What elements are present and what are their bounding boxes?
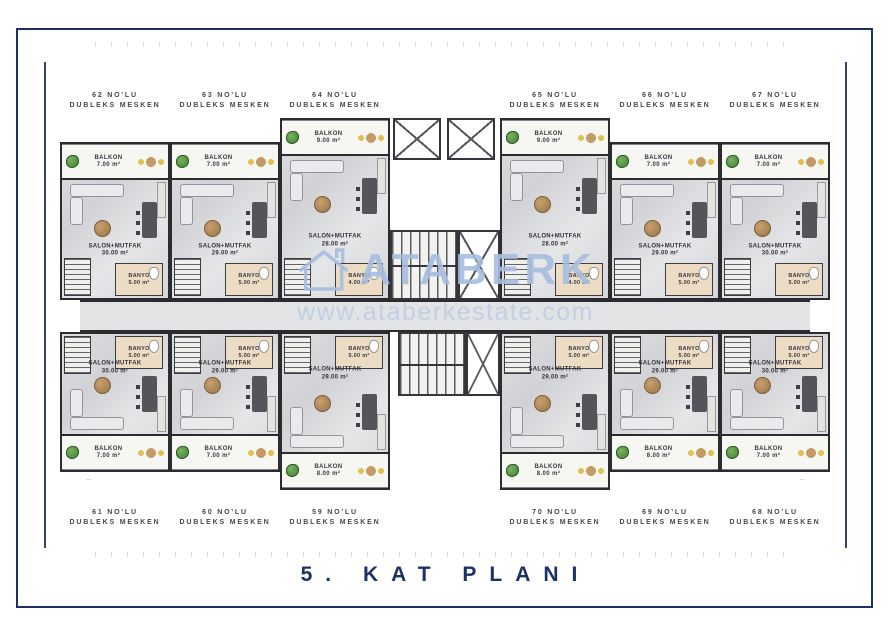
kitchen-counter-icon bbox=[377, 158, 386, 194]
apartment-unit: BALKON 9.00 m² SALON+MUTFAK 28.00 m² BAN… bbox=[280, 118, 390, 300]
shaft-void-icon bbox=[458, 230, 500, 300]
dining-table-icon bbox=[362, 394, 377, 430]
living-room-name: SALON+MUTFAK bbox=[62, 243, 168, 251]
apartment-unit: BALKON 8.00 m² SALON+MUTFAK 29.00 m² BAN… bbox=[610, 332, 720, 472]
living-room-label: SALON+MUTFAK 29.00 m² bbox=[172, 243, 278, 258]
patio-table-icon bbox=[578, 465, 604, 477]
living-room-name: SALON+MUTFAK bbox=[62, 361, 168, 369]
living-room-label: SALON+MUTFAK 29.00 m² bbox=[502, 367, 608, 382]
coffee-table-icon bbox=[754, 377, 771, 394]
dining-table-icon bbox=[252, 202, 267, 238]
bathroom-name: BANYO bbox=[128, 273, 149, 280]
bathroom-area: 5.00 m² bbox=[788, 353, 809, 360]
patio-table-icon bbox=[248, 156, 274, 168]
unit-type: DUBLEKS MESKEN bbox=[620, 102, 711, 109]
living-room-area: 30.00 m² bbox=[722, 251, 828, 259]
patio-table-icon bbox=[358, 465, 384, 477]
unit-number: 60 NO'LU bbox=[202, 509, 248, 516]
living-room-label: SALON+MUTFAK 29.00 m² bbox=[172, 361, 278, 376]
dining-table-icon bbox=[802, 376, 817, 412]
living-room: SALON+MUTFAK 29.00 m² BANYO 5.00 m² bbox=[282, 334, 388, 452]
living-room: SALON+MUTFAK 28.00 m² BANYO 4.00 m² bbox=[282, 156, 388, 298]
living-room-area: 29.00 m² bbox=[502, 374, 608, 382]
sofa-icon bbox=[70, 417, 124, 430]
bathroom: BANYO 5.00 m² bbox=[665, 263, 713, 296]
sofa-icon bbox=[620, 197, 633, 225]
plant-icon bbox=[176, 155, 189, 168]
balcony-area: 7.00 m² bbox=[97, 162, 120, 169]
balcony-label: BALKON 8.00 m² bbox=[644, 446, 672, 460]
bathroom-name: BANYO bbox=[128, 346, 149, 353]
apartment-unit: BALKON 7.00 m² SALON+MUTFAK 30.00 m² BAN… bbox=[720, 332, 830, 472]
coffee-table-icon bbox=[204, 377, 221, 394]
balcony-area: 8.00 m² bbox=[317, 471, 340, 478]
unit-number: 59 NO'LU bbox=[312, 509, 358, 516]
patio-table-icon bbox=[138, 447, 164, 459]
living-room-label: SALON+MUTFAK 30.00 m² bbox=[722, 243, 828, 258]
balcony-name: BALKON bbox=[534, 464, 562, 471]
unit-number: 70 NO'LU bbox=[532, 509, 578, 516]
living-room-area: 28.00 m² bbox=[282, 241, 388, 249]
sofa-icon bbox=[730, 184, 784, 197]
unit-number-label: 62 NO'LU DUBLEKS MESKEN bbox=[60, 80, 170, 120]
coffee-table-icon bbox=[754, 220, 771, 237]
bathroom-name: BANYO bbox=[238, 273, 259, 280]
balcony-area: 9.00 m² bbox=[537, 138, 560, 145]
patio-table-icon bbox=[688, 156, 714, 168]
balcony: BALKON 9.00 m² bbox=[502, 120, 608, 156]
coffee-table-icon bbox=[534, 395, 551, 412]
duplex-stairs-icon bbox=[174, 258, 201, 296]
balcony: BALKON 7.00 m² bbox=[62, 144, 168, 180]
balcony-area: 8.00 m² bbox=[537, 471, 560, 478]
apartment-unit: BALKON 8.00 m² SALON+MUTFAK 29.00 m² BAN… bbox=[280, 332, 390, 490]
bathroom: BANYO 5.00 m² bbox=[335, 336, 383, 369]
plant-icon bbox=[726, 155, 739, 168]
balcony-area: 7.00 m² bbox=[207, 162, 230, 169]
living-room-label: SALON+MUTFAK 29.00 m² bbox=[282, 367, 388, 382]
plant-icon bbox=[506, 131, 519, 144]
unit-number-label: 68 NO'LU DUBLEKS MESKEN bbox=[720, 497, 830, 537]
dining-table-icon bbox=[142, 202, 157, 238]
balcony-label: BALKON 7.00 m² bbox=[644, 155, 672, 169]
building-core bbox=[390, 118, 500, 490]
living-room-label: SALON+MUTFAK 29.00 m² bbox=[612, 243, 718, 258]
bathroom-area: 4.00 m² bbox=[568, 280, 589, 287]
sofa-icon bbox=[730, 417, 784, 430]
unit-number-label: 59 NO'LU DUBLEKS MESKEN bbox=[280, 497, 390, 537]
dining-table-icon bbox=[252, 376, 267, 412]
apartment-unit: BALKON 7.00 m² SALON+MUTFAK 30.00 m² BAN… bbox=[720, 142, 830, 300]
balcony-name: BALKON bbox=[94, 155, 122, 162]
living-room-area: 28.00 m² bbox=[502, 241, 608, 249]
unit-number-label: 70 NO'LU DUBLEKS MESKEN bbox=[500, 497, 610, 537]
bathroom-name: BANYO bbox=[678, 346, 699, 353]
dimension-line-right bbox=[845, 62, 847, 548]
unit-type: DUBLEKS MESKEN bbox=[510, 519, 601, 526]
balcony: BALKON 8.00 m² bbox=[502, 452, 608, 488]
unit-number-label: 66 NO'LU DUBLEKS MESKEN bbox=[610, 80, 720, 120]
bathroom-area: 5.00 m² bbox=[238, 353, 259, 360]
sofa-icon bbox=[730, 389, 743, 417]
bathroom-area: 5.00 m² bbox=[788, 280, 809, 287]
balcony-label: BALKON 8.00 m² bbox=[534, 464, 562, 478]
living-room-label: SALON+MUTFAK 30.00 m² bbox=[62, 243, 168, 258]
sofa-icon bbox=[620, 417, 674, 430]
dimension-ticks-top bbox=[95, 42, 796, 47]
unit-type: DUBLEKS MESKEN bbox=[180, 102, 271, 109]
balcony-name: BALKON bbox=[644, 446, 672, 453]
coffee-table-icon bbox=[94, 377, 111, 394]
balcony: BALKON 7.00 m² bbox=[172, 434, 278, 470]
balcony: BALKON 7.00 m² bbox=[722, 434, 828, 470]
kitchen-counter-icon bbox=[597, 414, 606, 450]
bathroom-name: BANYO bbox=[678, 273, 699, 280]
balcony-label: BALKON 7.00 m² bbox=[754, 155, 782, 169]
unit-type: DUBLEKS MESKEN bbox=[730, 102, 821, 109]
living-room-name: SALON+MUTFAK bbox=[722, 361, 828, 369]
balcony: BALKON 8.00 m² bbox=[282, 452, 388, 488]
bathroom-area: 5.00 m² bbox=[568, 353, 589, 360]
balcony: BALKON 7.00 m² bbox=[62, 434, 168, 470]
living-room-name: SALON+MUTFAK bbox=[612, 361, 718, 369]
unit-type: DUBLEKS MESKEN bbox=[70, 519, 161, 526]
balcony-label: BALKON 8.00 m² bbox=[314, 464, 342, 478]
living-room: SALON+MUTFAK 30.00 m² BANYO 5.00 m² bbox=[62, 334, 168, 434]
bathroom-name: BANYO bbox=[788, 346, 809, 353]
balcony-name: BALKON bbox=[204, 155, 232, 162]
unit-number-label: 69 NO'LU DUBLEKS MESKEN bbox=[610, 497, 720, 537]
sofa-icon bbox=[70, 389, 83, 417]
plant-icon bbox=[616, 446, 629, 459]
bathroom: BANYO 5.00 m² bbox=[775, 263, 823, 296]
sofa-icon bbox=[510, 173, 523, 201]
living-room: SALON+MUTFAK 29.00 m² BANYO 5.00 m² bbox=[502, 334, 608, 452]
dining-table-icon bbox=[362, 178, 377, 214]
living-room: SALON+MUTFAK 29.00 m² BANYO 5.00 m² bbox=[172, 334, 278, 434]
living-room: SALON+MUTFAK 30.00 m² BANYO 5.00 m² bbox=[62, 180, 168, 298]
bathroom-name: BANYO bbox=[568, 346, 589, 353]
kitchen-counter-icon bbox=[157, 182, 166, 218]
bathroom-name: BANYO bbox=[788, 273, 809, 280]
sofa-icon bbox=[510, 435, 564, 448]
coffee-table-icon bbox=[644, 220, 661, 237]
plant-icon bbox=[66, 155, 79, 168]
balcony-name: BALKON bbox=[94, 446, 122, 453]
coffee-table-icon bbox=[534, 196, 551, 213]
sofa-icon bbox=[180, 417, 234, 430]
patio-table-icon bbox=[798, 156, 824, 168]
unit-number-label: 61 NO'LU DUBLEKS MESKEN bbox=[60, 497, 170, 537]
living-room-label: SALON+MUTFAK 28.00 m² bbox=[502, 234, 608, 249]
living-room-name: SALON+MUTFAK bbox=[612, 243, 718, 251]
dining-table-icon bbox=[582, 394, 597, 430]
living-room: SALON+MUTFAK 30.00 m² BANYO 5.00 m² bbox=[722, 180, 828, 298]
living-room-label: SALON+MUTFAK 28.00 m² bbox=[282, 234, 388, 249]
unit-number-label: 63 NO'LU DUBLEKS MESKEN bbox=[170, 80, 280, 120]
dining-table-icon bbox=[582, 178, 597, 214]
bathroom-name: BANYO bbox=[568, 273, 589, 280]
unit-number: 66 NO'LU bbox=[642, 92, 688, 99]
dining-table-icon bbox=[802, 202, 817, 238]
core-gap bbox=[390, 80, 500, 120]
kitchen-counter-icon bbox=[267, 396, 276, 432]
living-room-area: 30.00 m² bbox=[62, 368, 168, 376]
bathroom: BANYO 5.00 m² bbox=[225, 263, 273, 296]
patio-table-icon bbox=[578, 132, 604, 144]
patio-table-icon bbox=[688, 447, 714, 459]
living-room-area: 29.00 m² bbox=[612, 368, 718, 376]
bathroom-area: 5.00 m² bbox=[678, 280, 699, 287]
core-gap bbox=[390, 497, 500, 537]
balcony-area: 8.00 m² bbox=[647, 453, 670, 460]
living-room-label: SALON+MUTFAK 30.00 m² bbox=[62, 361, 168, 376]
unit-number: 67 NO'LU bbox=[752, 92, 798, 99]
coffee-table-icon bbox=[204, 220, 221, 237]
plant-icon bbox=[726, 446, 739, 459]
bathroom-area: 5.00 m² bbox=[128, 280, 149, 287]
living-room-name: SALON+MUTFAK bbox=[282, 234, 388, 242]
balcony-name: BALKON bbox=[644, 155, 672, 162]
kitchen-counter-icon bbox=[597, 158, 606, 194]
living-room: SALON+MUTFAK 29.00 m² BANYO 5.00 m² bbox=[612, 180, 718, 298]
balcony-name: BALKON bbox=[314, 131, 342, 138]
living-room-name: SALON+MUTFAK bbox=[722, 243, 828, 251]
patio-table-icon bbox=[138, 156, 164, 168]
bathroom-area: 5.00 m² bbox=[128, 353, 149, 360]
duplex-stairs-icon bbox=[284, 258, 311, 296]
unit-number-label: 67 NO'LU DUBLEKS MESKEN bbox=[720, 80, 830, 120]
bathroom: BANYO 4.00 m² bbox=[335, 263, 383, 296]
sofa-icon bbox=[290, 435, 344, 448]
dining-table-icon bbox=[692, 376, 707, 412]
plant-icon bbox=[286, 464, 299, 477]
balcony-area: 7.00 m² bbox=[757, 162, 780, 169]
living-room-label: SALON+MUTFAK 30.00 m² bbox=[722, 361, 828, 376]
kitchen-counter-icon bbox=[817, 396, 826, 432]
dining-table-icon bbox=[692, 202, 707, 238]
bathroom-name: BANYO bbox=[348, 273, 369, 280]
plant-icon bbox=[506, 464, 519, 477]
apartment-unit: BALKON 7.00 m² SALON+MUTFAK 29.00 m² BAN… bbox=[170, 142, 280, 300]
unit-number: 69 NO'LU bbox=[642, 509, 688, 516]
duplex-stairs-icon bbox=[64, 258, 91, 296]
unit-number-label: 65 NO'LU DUBLEKS MESKEN bbox=[500, 80, 610, 120]
unit-labels-bottom: 61 NO'LU DUBLEKS MESKEN 60 NO'LU DUBLEKS… bbox=[60, 497, 830, 537]
elevator-shaft-icon bbox=[393, 118, 441, 160]
balcony: BALKON 7.00 m² bbox=[722, 144, 828, 180]
balcony-label: BALKON 7.00 m² bbox=[94, 446, 122, 460]
plant-icon bbox=[66, 446, 79, 459]
unit-number-label: 64 NO'LU DUBLEKS MESKEN bbox=[280, 80, 390, 120]
unit-labels-top: 62 NO'LU DUBLEKS MESKEN 63 NO'LU DUBLEKS… bbox=[60, 80, 830, 120]
bathroom-area: 4.00 m² bbox=[348, 280, 369, 287]
coffee-table-icon bbox=[314, 196, 331, 213]
kitchen-counter-icon bbox=[707, 396, 716, 432]
unit-number: 65 NO'LU bbox=[532, 92, 578, 99]
bathroom-area: 5.00 m² bbox=[348, 353, 369, 360]
patio-table-icon bbox=[358, 132, 384, 144]
sofa-icon bbox=[510, 407, 523, 435]
plant-icon bbox=[616, 155, 629, 168]
apartment-unit: BALKON 8.00 m² SALON+MUTFAK 29.00 m² BAN… bbox=[500, 332, 610, 490]
sofa-icon bbox=[510, 160, 564, 173]
bathroom-area: 5.00 m² bbox=[678, 353, 699, 360]
elevator-bank bbox=[393, 118, 495, 160]
kitchen-counter-icon bbox=[157, 396, 166, 432]
unit-number: 68 NO'LU bbox=[752, 509, 798, 516]
living-room: SALON+MUTFAK 29.00 m² BANYO 5.00 m² bbox=[172, 180, 278, 298]
bathroom-area: 5.00 m² bbox=[238, 280, 259, 287]
apartment-unit: BALKON 7.00 m² SALON+MUTFAK 29.00 m² BAN… bbox=[170, 332, 280, 472]
plant-icon bbox=[286, 131, 299, 144]
balcony-label: BALKON 7.00 m² bbox=[204, 155, 232, 169]
duplex-stairs-icon bbox=[614, 258, 641, 296]
sofa-icon bbox=[70, 197, 83, 225]
balcony-label: BALKON 9.00 m² bbox=[314, 131, 342, 145]
unit-number: 64 NO'LU bbox=[312, 92, 358, 99]
shaft-void-icon bbox=[466, 332, 500, 396]
unit-type: DUBLEKS MESKEN bbox=[70, 102, 161, 109]
unit-type: DUBLEKS MESKEN bbox=[290, 102, 381, 109]
plant-icon bbox=[176, 446, 189, 459]
unit-number: 62 NO'LU bbox=[92, 92, 138, 99]
balcony-label: BALKON 7.00 m² bbox=[94, 155, 122, 169]
living-room: SALON+MUTFAK 28.00 m² BANYO 4.00 m² bbox=[502, 156, 608, 298]
sofa-icon bbox=[180, 389, 193, 417]
sofa-icon bbox=[70, 184, 124, 197]
kitchen-counter-icon bbox=[267, 182, 276, 218]
main-staircase-upper bbox=[390, 230, 458, 300]
living-room-area: 29.00 m² bbox=[612, 251, 718, 259]
bathroom: BANYO 5.00 m² bbox=[115, 263, 163, 296]
floor-plan-page: 62 NO'LU DUBLEKS MESKEN 63 NO'LU DUBLEKS… bbox=[0, 0, 891, 630]
living-room-name: SALON+MUTFAK bbox=[172, 243, 278, 251]
unit-type: DUBLEKS MESKEN bbox=[730, 519, 821, 526]
unit-type: DUBLEKS MESKEN bbox=[510, 102, 601, 109]
dining-table-icon bbox=[142, 376, 157, 412]
balcony-area: 7.00 m² bbox=[207, 453, 230, 460]
living-room-area: 29.00 m² bbox=[282, 374, 388, 382]
patio-table-icon bbox=[248, 447, 274, 459]
balcony: BALKON 8.00 m² bbox=[612, 434, 718, 470]
balcony-area: 9.00 m² bbox=[317, 138, 340, 145]
apartment-unit: BALKON 7.00 m² SALON+MUTFAK 29.00 m² BAN… bbox=[610, 142, 720, 300]
main-staircase-lower bbox=[398, 332, 466, 396]
apartment-unit: BALKON 7.00 m² SALON+MUTFAK 30.00 m² BAN… bbox=[60, 332, 170, 472]
balcony-label: BALKON 7.00 m² bbox=[754, 446, 782, 460]
balcony-area: 7.00 m² bbox=[647, 162, 670, 169]
balcony-name: BALKON bbox=[204, 446, 232, 453]
sofa-icon bbox=[180, 184, 234, 197]
balcony-name: BALKON bbox=[534, 131, 562, 138]
living-room-name: SALON+MUTFAK bbox=[502, 234, 608, 242]
balcony-area: 7.00 m² bbox=[757, 453, 780, 460]
sofa-icon bbox=[620, 389, 633, 417]
balcony-label: BALKON 9.00 m² bbox=[534, 131, 562, 145]
bathroom-name: BANYO bbox=[238, 346, 259, 353]
living-room-name: SALON+MUTFAK bbox=[502, 367, 608, 375]
balcony: BALKON 7.00 m² bbox=[172, 144, 278, 180]
patio-table-icon bbox=[798, 447, 824, 459]
sofa-icon bbox=[290, 173, 303, 201]
unit-number: 61 NO'LU bbox=[92, 509, 138, 516]
living-room: SALON+MUTFAK 30.00 m² BANYO 5.00 m² bbox=[722, 334, 828, 434]
living-room-area: 29.00 m² bbox=[172, 251, 278, 259]
apartment-unit: BALKON 7.00 m² SALON+MUTFAK 30.00 m² BAN… bbox=[60, 142, 170, 300]
sofa-icon bbox=[180, 197, 193, 225]
balcony-area: 7.00 m² bbox=[97, 453, 120, 460]
unit-type: DUBLEKS MESKEN bbox=[180, 519, 271, 526]
unit-type: DUBLEKS MESKEN bbox=[620, 519, 711, 526]
unit-number: 63 NO'LU bbox=[202, 92, 248, 99]
balcony: BALKON 7.00 m² bbox=[612, 144, 718, 180]
balcony-name: BALKON bbox=[754, 446, 782, 453]
living-room-area: 30.00 m² bbox=[722, 368, 828, 376]
elevator-shaft-icon bbox=[447, 118, 495, 160]
kitchen-counter-icon bbox=[707, 182, 716, 218]
sofa-icon bbox=[290, 160, 344, 173]
balcony-name: BALKON bbox=[754, 155, 782, 162]
sofa-icon bbox=[620, 184, 674, 197]
kitchen-counter-icon bbox=[817, 182, 826, 218]
dimension-line-left bbox=[44, 62, 46, 548]
bathroom-name: BANYO bbox=[348, 346, 369, 353]
living-room-name: SALON+MUTFAK bbox=[172, 361, 278, 369]
dimension-ticks-bottom bbox=[95, 552, 796, 557]
unit-type: DUBLEKS MESKEN bbox=[290, 519, 381, 526]
balcony: BALKON 9.00 m² bbox=[282, 120, 388, 156]
sofa-icon bbox=[290, 407, 303, 435]
apartment-unit: BALKON 9.00 m² SALON+MUTFAK 28.00 m² BAN… bbox=[500, 118, 610, 300]
living-room-area: 29.00 m² bbox=[172, 368, 278, 376]
duplex-stairs-icon bbox=[724, 258, 751, 296]
living-room: SALON+MUTFAK 29.00 m² BANYO 5.00 m² bbox=[612, 334, 718, 434]
kitchen-counter-icon bbox=[377, 414, 386, 450]
living-room-area: 30.00 m² bbox=[62, 251, 168, 259]
bathroom: BANYO 5.00 m² bbox=[555, 336, 603, 369]
living-room-name: SALON+MUTFAK bbox=[282, 367, 388, 375]
living-room-label: SALON+MUTFAK 29.00 m² bbox=[612, 361, 718, 376]
coffee-table-icon bbox=[94, 220, 111, 237]
coffee-table-icon bbox=[644, 377, 661, 394]
bathroom: BANYO 4.00 m² bbox=[555, 263, 603, 296]
unit-number-label: 60 NO'LU DUBLEKS MESKEN bbox=[170, 497, 280, 537]
balcony-label: BALKON 7.00 m² bbox=[204, 446, 232, 460]
balcony-name: BALKON bbox=[314, 464, 342, 471]
coffee-table-icon bbox=[314, 395, 331, 412]
duplex-stairs-icon bbox=[504, 258, 531, 296]
page-title: 5. KAT PLANI bbox=[0, 563, 891, 587]
sofa-icon bbox=[730, 197, 743, 225]
